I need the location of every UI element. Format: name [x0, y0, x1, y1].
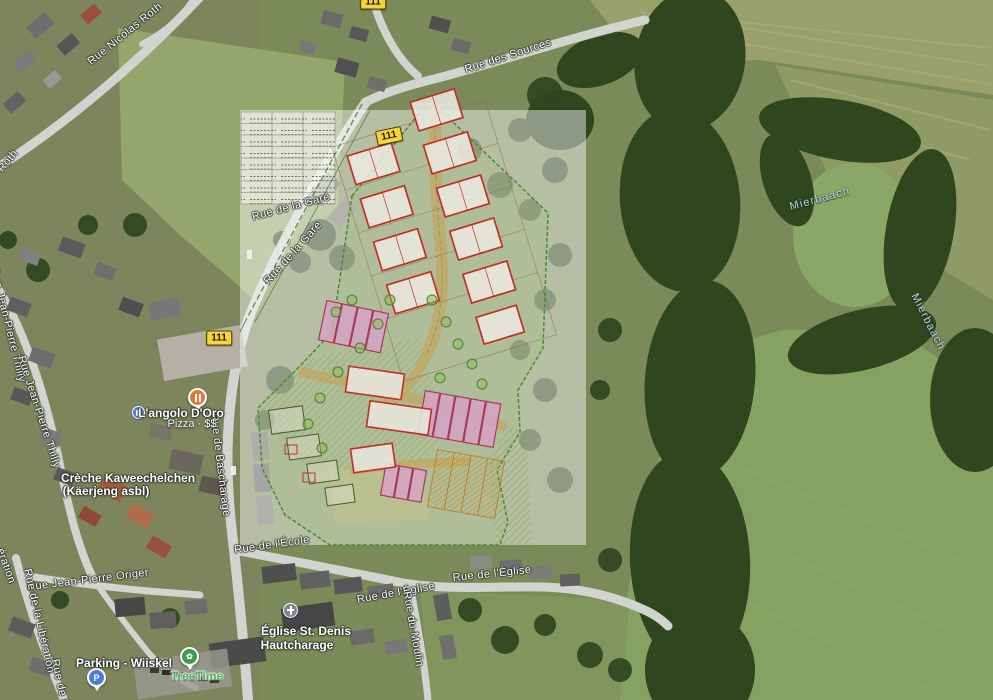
- road-label: Rue de l'Église: [452, 564, 532, 584]
- transit-stop-icon[interactable]: [132, 406, 145, 419]
- church-icon[interactable]: [283, 603, 298, 618]
- parking-pin-icon[interactable]: P: [87, 668, 106, 687]
- road-label: Roth: [0, 148, 21, 175]
- park-pin-icon[interactable]: ✿: [180, 647, 199, 666]
- road-label: Rue Jean-Pierre Thilly: [15, 354, 63, 469]
- road-label: Rue de l'Église: [356, 580, 436, 606]
- water-label: Mierbaach: [909, 292, 948, 353]
- route-badge: 111: [360, 0, 386, 10]
- water-label: Mierbaach: [788, 185, 851, 213]
- road-label: Rue du Moulin: [400, 590, 425, 667]
- road-label: Rue de Bascharage: [208, 413, 233, 518]
- road-label: Rue Nicolas Roth: [85, 0, 164, 67]
- road-label: ération: [0, 547, 18, 585]
- road-label: Rue de la Libération: [21, 568, 57, 674]
- road-label: Rue de la: [49, 658, 71, 700]
- label-layer: Rue Nicolas RothRothRue des SourcesRue d…: [0, 0, 993, 700]
- road-label: Rue de la Gare: [251, 191, 332, 223]
- route-badge: 111: [375, 126, 403, 146]
- road-label: Rue de la Gare: [262, 219, 325, 287]
- route-badge: 111: [206, 331, 232, 346]
- road-label: Rue Jean-Pierre Thilly: [0, 267, 28, 384]
- road-label: Rue Jean-Pierre Origer: [26, 567, 149, 594]
- restaurant-pin-icon[interactable]: [188, 388, 207, 407]
- road-label: Rue de l'École: [233, 534, 310, 556]
- map-canvas[interactable]: Rue Nicolas RothRothRue des SourcesRue d…: [0, 0, 993, 700]
- road-label: Rue des Sources: [463, 36, 553, 75]
